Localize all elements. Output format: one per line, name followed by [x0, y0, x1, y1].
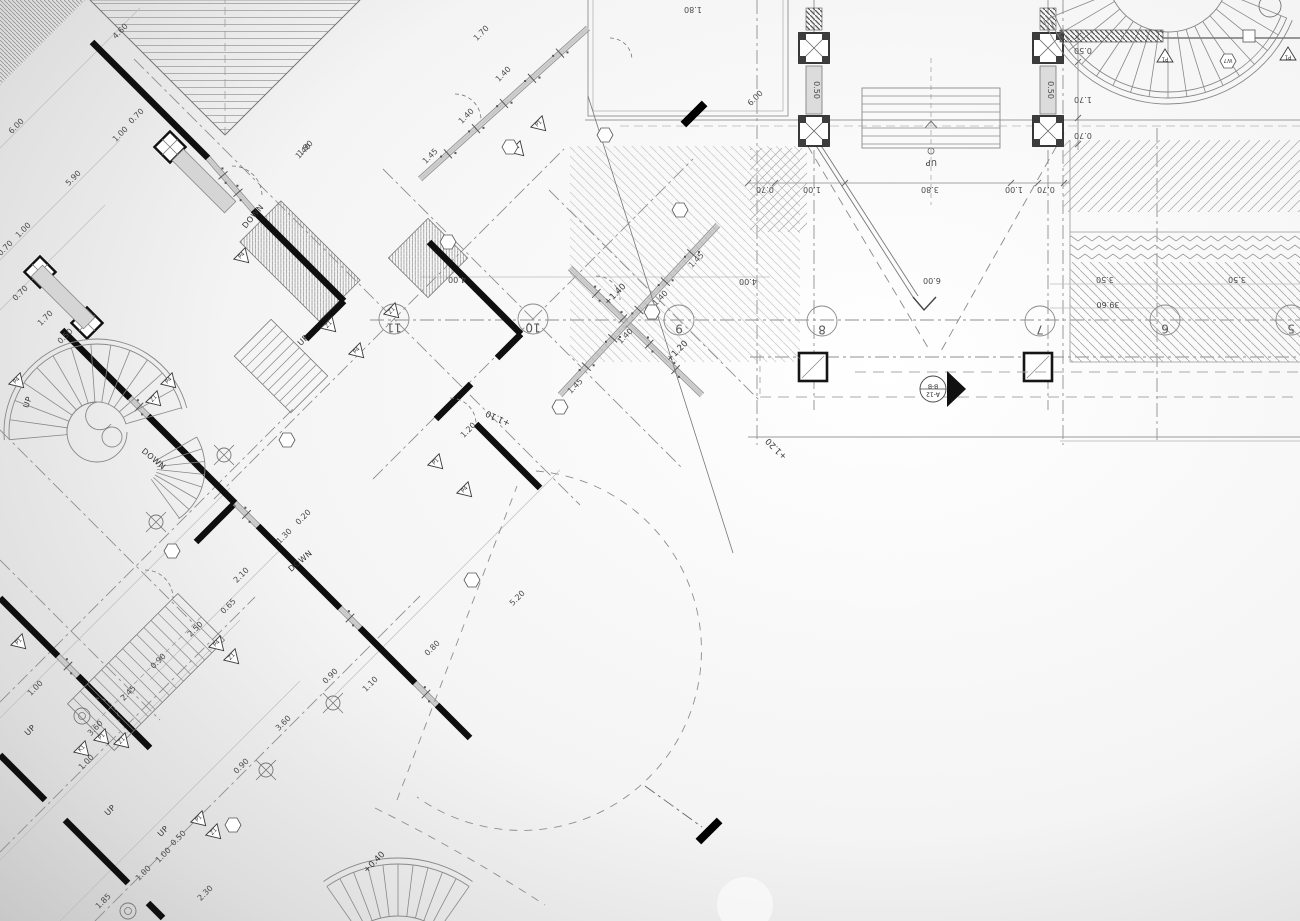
dimension-label: 6.00: [923, 276, 941, 285]
dimension-label: 3.80: [921, 185, 939, 194]
hex-tag: [597, 128, 613, 142]
hex-tag: [225, 818, 241, 832]
hex-tag: [644, 305, 660, 319]
crosshair-symbol: [146, 512, 166, 532]
hex-tag: [672, 203, 688, 217]
grid-bubble-label: 11: [386, 321, 401, 335]
section-label-bottom: A-12: [926, 391, 940, 398]
grid-bubble-label: 10: [525, 321, 540, 335]
direction-label: UP: [925, 158, 937, 167]
crosshair-symbol: [256, 760, 276, 780]
hex-tag: [502, 140, 518, 154]
section-label-top: B-B: [928, 383, 938, 390]
roof-ridge-chevron: [1070, 232, 1300, 262]
grid-bubble-label: 6: [1161, 322, 1169, 336]
dimension-label: 3.50: [1096, 275, 1114, 284]
dimension-label: 39.60: [1097, 300, 1120, 309]
dimension-label: 1.80: [684, 5, 702, 14]
dimension-label: 0.50: [1046, 81, 1055, 99]
hex-tag: [440, 235, 456, 249]
dimension-label: 3.50: [1228, 275, 1246, 284]
window-marker-label: P1: [1285, 54, 1292, 60]
grid-bubble-label: 5: [1287, 322, 1295, 336]
floor-plan-drawing: 111098765 1.804.004.006.003.503.5039.600…: [0, 0, 1300, 921]
terrace-pier: [1024, 353, 1052, 381]
hex-tag: [552, 400, 568, 414]
dimension-label: 0.70: [1037, 185, 1055, 194]
terrace-hatch-center: [570, 146, 800, 362]
dimension-label: 0.50: [812, 81, 821, 99]
hex-tag: [164, 544, 180, 558]
dimension-label: 4.00: [448, 275, 466, 284]
hex-tag: W7: [1220, 54, 1236, 68]
column: [1033, 116, 1063, 146]
roof-hatch-right: [1063, 140, 1300, 212]
grid-bubble-label: 7: [1036, 323, 1044, 337]
dimension-label: 1.00: [1005, 185, 1023, 194]
window-marker-label: P1: [1162, 56, 1169, 62]
crosshair-symbol: [214, 445, 234, 465]
hex-tag-label: W7: [1223, 57, 1232, 63]
fan-base-wall: [1060, 30, 1163, 42]
dimension-label: 1.70: [1074, 95, 1092, 104]
floor-plan-canvas: 111098765 1.804.004.006.003.503.5039.600…: [0, 0, 1300, 921]
dimension-label: 0.50: [1074, 46, 1092, 55]
crosshair-symbol: [323, 693, 343, 713]
dimension-label: 1.00: [803, 185, 821, 194]
dimension-label: 0.70: [1074, 131, 1092, 140]
terrace-pier: [799, 353, 827, 381]
grid-bubble-label: 8: [818, 323, 826, 337]
hex-tag: [279, 433, 295, 447]
hex-tag: [464, 573, 480, 587]
dimension-label: 0.70: [756, 185, 774, 194]
column: [799, 116, 829, 146]
dimension-label: 4.00: [739, 277, 757, 286]
column: [799, 33, 829, 63]
grid-bubble-label: 9: [675, 322, 683, 336]
